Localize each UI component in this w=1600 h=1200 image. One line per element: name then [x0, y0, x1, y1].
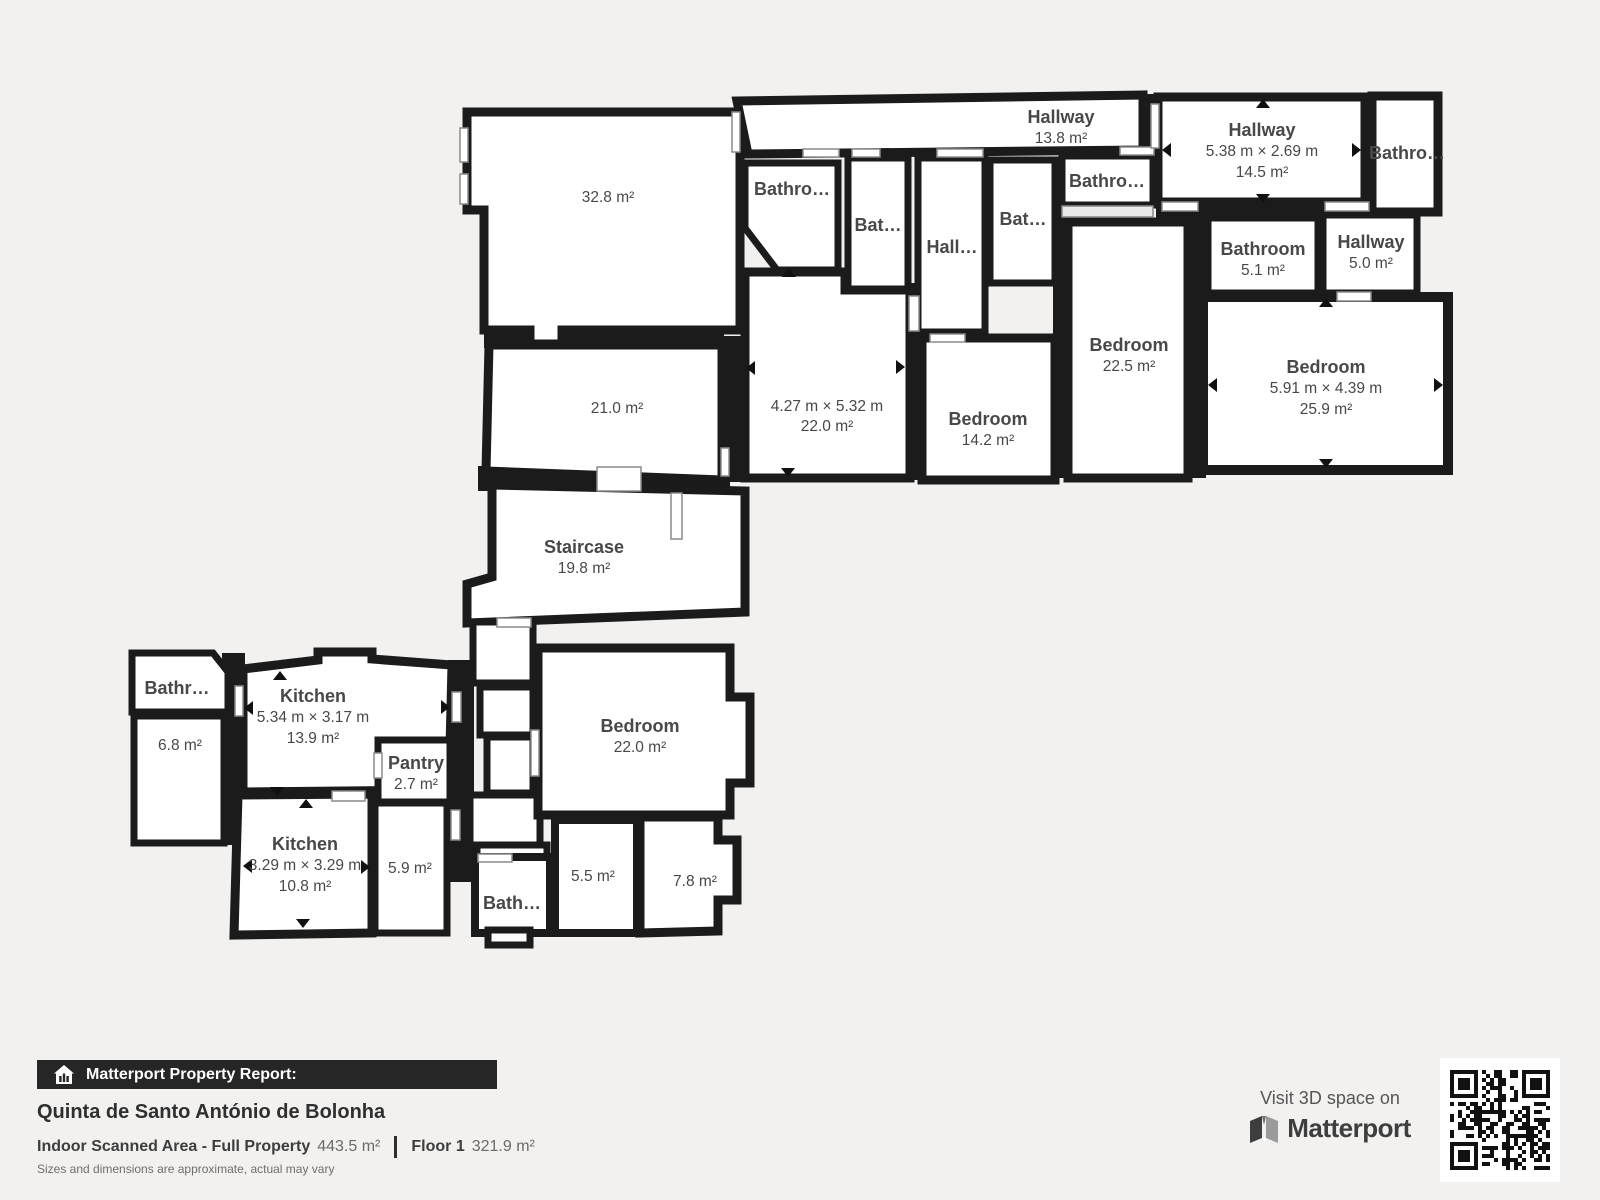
- room-shape-landing: [480, 687, 533, 735]
- room-shape-bathroom-4: [1062, 156, 1153, 205]
- house-icon: [53, 1065, 75, 1085]
- matterport-cta: Visit 3D space on Matterport: [1230, 1088, 1430, 1144]
- room-shape-hallway-top: [737, 95, 1143, 154]
- metrics-divider: [394, 1136, 397, 1158]
- room-shape-bathroom-2: [848, 158, 908, 290]
- room-shape-bathroom-5-1: [1208, 218, 1318, 293]
- room-shape-hallway-14-5: [1158, 97, 1365, 202]
- room-shape-bathroom-top-right: [1372, 96, 1438, 212]
- room-shape-landing: [487, 737, 533, 793]
- room-shape-bedroom-22-0: [538, 648, 750, 815]
- qr-code-pattern: [1450, 1070, 1550, 1170]
- room-shapes: [132, 95, 1448, 945]
- room-shape-32-8: [467, 112, 740, 344]
- room-shape-bathroom-low-stub: [488, 930, 530, 945]
- area-metrics: Indoor Scanned Area - Full Property 443.…: [37, 1136, 535, 1158]
- room-shape-room-5-5: [555, 820, 637, 933]
- room-shape-room-6-8: [134, 716, 224, 843]
- room-shape-pantry: [378, 740, 450, 802]
- floor-label: Floor 1: [411, 1138, 464, 1156]
- room-shape-hallway-5-0: [1323, 215, 1417, 293]
- scanned-area-value: 443.5 m²: [317, 1138, 380, 1156]
- room-shape-room-22-0: [745, 272, 910, 478]
- room-shape-bathroom-3: [990, 160, 1055, 283]
- room-shape-bathroom-low: [475, 857, 550, 933]
- room-shape-landing: [470, 795, 540, 847]
- floor-value: 321.9 m²: [472, 1138, 535, 1156]
- floorplan-drawing: [0, 0, 1600, 1200]
- qr-code: [1440, 1058, 1560, 1182]
- room-shape-room-5-9: [375, 803, 447, 933]
- room-shape-room-7-8: [640, 817, 737, 933]
- room-shape-kitchen-10-8: [234, 794, 372, 935]
- room-shape-bedroom-22-5: [1068, 222, 1188, 478]
- scanned-area-label: Indoor Scanned Area - Full Property: [37, 1138, 310, 1156]
- matterport-wordmark: Matterport: [1287, 1113, 1411, 1144]
- room-shape-staircase: [467, 485, 745, 623]
- matterport-logo-icon: [1249, 1114, 1279, 1144]
- room-shape-landing: [473, 622, 533, 683]
- visit-3d-label: Visit 3D space on: [1260, 1088, 1400, 1109]
- property-name: Quinta de Santo António de Bolonha: [37, 1101, 385, 1124]
- room-shape-room-21-0: [486, 345, 722, 480]
- report-banner: Matterport Property Report:: [37, 1060, 497, 1089]
- floorplan-page: Hallway 13.8 m² Hallway 5.38 m × 2.69 m …: [0, 0, 1600, 1200]
- report-banner-label: Matterport Property Report:: [86, 1066, 297, 1084]
- room-shape-bathroom-1: [745, 163, 838, 270]
- room-shape-hall-mid: [918, 158, 985, 332]
- matterport-logo: Matterport: [1249, 1113, 1411, 1144]
- room-shape-bathroom-ll: [132, 653, 228, 712]
- disclaimer-text: Sizes and dimensions are approximate, ac…: [37, 1162, 334, 1176]
- room-shape-bedroom-14-2: [922, 338, 1055, 480]
- room-shape-bedroom-25-9: [1203, 297, 1448, 470]
